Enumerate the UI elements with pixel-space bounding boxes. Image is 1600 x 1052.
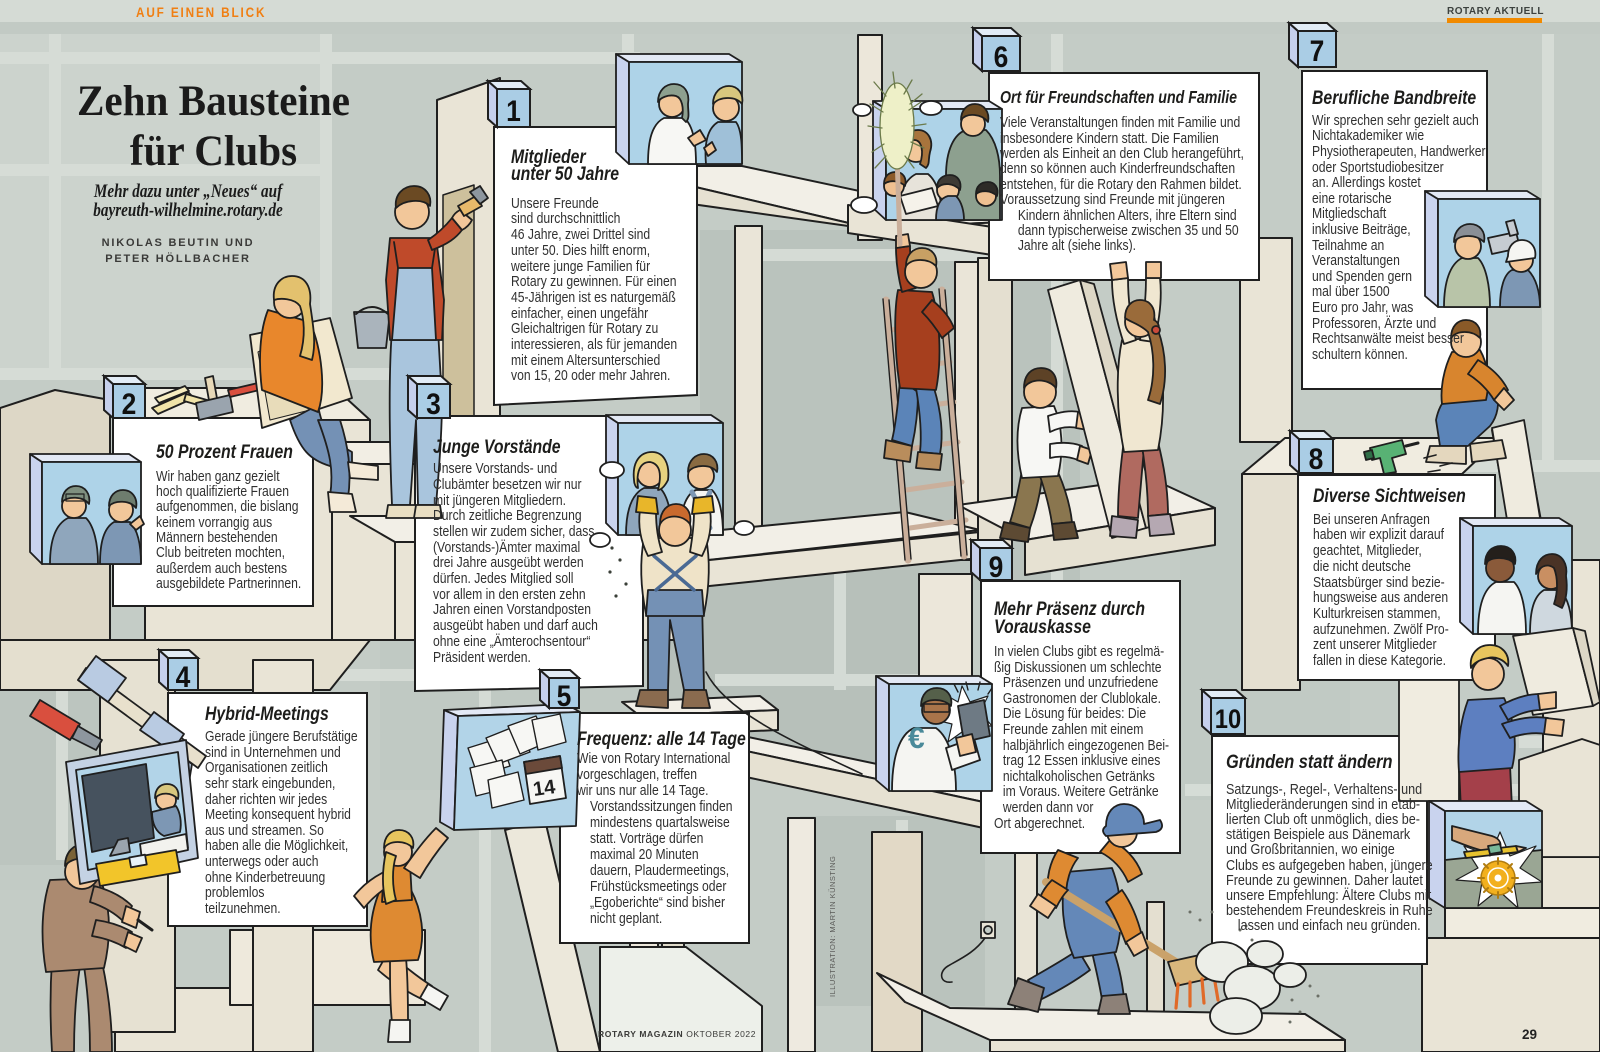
svg-text:€: €: [908, 722, 925, 755]
svg-text:14: 14: [532, 776, 558, 801]
